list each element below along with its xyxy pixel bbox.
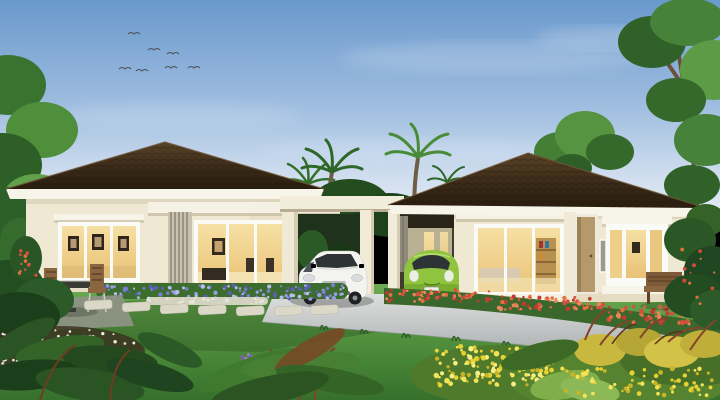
- louver-screen: [168, 212, 192, 292]
- slit-window: [600, 240, 606, 272]
- door-knob: [590, 255, 593, 258]
- fascia: [6, 189, 324, 199]
- architectural-rendering: [0, 0, 720, 400]
- side-mirror: [359, 264, 364, 268]
- stepping-stone: [274, 306, 302, 316]
- beam-shadow: [280, 209, 404, 212]
- pillar-shade: [397, 210, 400, 298]
- pillar-shade: [294, 212, 298, 292]
- cloud: [60, 101, 300, 129]
- stepping-stone: [122, 302, 150, 312]
- headlight: [409, 270, 419, 282]
- stepping-stone: [198, 305, 226, 315]
- sliding-window: [470, 224, 568, 300]
- headlight: [303, 275, 315, 282]
- headlight: [444, 270, 454, 282]
- sliding-glass-door: [194, 220, 288, 292]
- stepping-stone: [310, 305, 338, 315]
- stepping-stone: [84, 300, 112, 310]
- headlight: [352, 275, 363, 282]
- pillar-shade: [371, 210, 374, 294]
- stepping-stone: [160, 304, 188, 314]
- front-door: [574, 214, 598, 294]
- house-rendering-canvas: [0, 0, 720, 400]
- canopy-shadow: [456, 219, 576, 222]
- side-mirror: [311, 264, 316, 268]
- stepping-stone: [236, 306, 264, 316]
- window-awning: [54, 214, 144, 220]
